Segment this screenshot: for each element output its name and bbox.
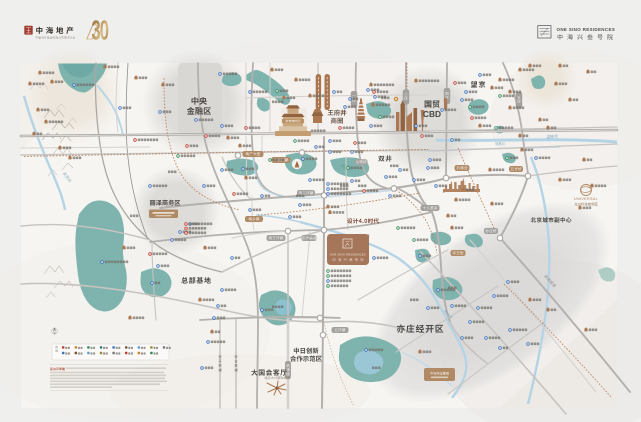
svg-text:M: M xyxy=(365,349,367,352)
svg-text:M: M xyxy=(151,282,153,285)
svg-text:M: M xyxy=(495,127,497,130)
svg-text:M: M xyxy=(242,168,244,171)
svg-text:M: M xyxy=(354,142,356,145)
svg-text:M: M xyxy=(429,159,431,162)
svg-text:M: M xyxy=(201,367,203,370)
svg-text:M: M xyxy=(134,139,136,142)
svg-text:M: M xyxy=(419,255,421,258)
svg-text:M: M xyxy=(233,193,235,196)
svg-text:M: M xyxy=(289,216,291,219)
svg-text:M: M xyxy=(363,190,365,193)
svg-text:M: M xyxy=(327,280,329,283)
svg-text:M: M xyxy=(231,257,233,260)
svg-text:M: M xyxy=(149,185,151,188)
svg-text:M: M xyxy=(327,285,329,288)
svg-text:M: M xyxy=(441,109,443,112)
svg-text:M: M xyxy=(471,117,473,120)
svg-text:M: M xyxy=(205,135,207,138)
svg-text:M: M xyxy=(507,281,509,284)
svg-text:M: M xyxy=(101,261,103,264)
svg-text:ONE SINO RESIDENCES: ONE SINO RESIDENCES xyxy=(557,27,616,32)
svg-text:M: M xyxy=(339,127,341,130)
svg-text:M: M xyxy=(245,127,247,130)
svg-text:M: M xyxy=(195,119,197,122)
svg-text:M: M xyxy=(413,179,415,182)
svg-text:M: M xyxy=(385,176,387,179)
svg-text:M: M xyxy=(499,95,501,98)
svg-text:M: M xyxy=(186,145,188,148)
svg-text:M: M xyxy=(294,140,296,143)
svg-text:M: M xyxy=(149,253,151,256)
svg-text:M: M xyxy=(373,257,375,260)
svg-text:M: M xyxy=(207,341,209,344)
svg-text:M: M xyxy=(415,125,417,128)
svg-text:M: M xyxy=(327,193,329,196)
svg-text:M: M xyxy=(157,265,159,268)
svg-text:M: M xyxy=(333,91,335,94)
svg-text:M: M xyxy=(327,183,329,186)
svg-text:M: M xyxy=(465,91,467,94)
svg-text:M: M xyxy=(427,167,429,170)
svg-text:CBD: CBD xyxy=(423,109,441,119)
svg-text:M: M xyxy=(413,239,415,242)
svg-text:M: M xyxy=(302,158,304,161)
svg-text:M: M xyxy=(329,151,331,154)
svg-text:M: M xyxy=(344,106,346,109)
svg-text:M: M xyxy=(374,96,376,99)
svg-text:M: M xyxy=(451,139,453,142)
svg-text:M: M xyxy=(351,151,353,154)
svg-text:M: M xyxy=(177,155,179,158)
svg-text:M: M xyxy=(435,185,437,188)
svg-text:M: M xyxy=(427,307,429,310)
svg-text:M: M xyxy=(485,337,487,340)
svg-text:M: M xyxy=(315,146,317,149)
svg-text:M: M xyxy=(185,227,187,230)
svg-text:M: M xyxy=(203,185,205,188)
svg-text:M: M xyxy=(179,231,181,234)
svg-text:M: M xyxy=(506,157,508,160)
svg-text:M: M xyxy=(379,116,381,119)
svg-text:M: M xyxy=(347,167,349,170)
svg-text:M: M xyxy=(421,135,423,138)
svg-text:M: M xyxy=(535,157,537,160)
svg-text:30: 30 xyxy=(91,14,108,46)
svg-text:M: M xyxy=(327,270,329,273)
svg-text:ONE SINO RESIDENCES: ONE SINO RESIDENCES xyxy=(330,253,366,257)
svg-text:M: M xyxy=(159,111,161,114)
svg-text:M: M xyxy=(499,347,501,350)
svg-text:M: M xyxy=(351,180,353,183)
svg-text:M: M xyxy=(249,91,251,94)
svg-text:M: M xyxy=(261,309,263,312)
svg-text:M: M xyxy=(389,195,391,198)
svg-text:M: M xyxy=(185,223,187,226)
svg-text:M: M xyxy=(479,74,481,77)
svg-text:M: M xyxy=(399,169,401,172)
svg-text:M: M xyxy=(171,239,173,242)
svg-text:M: M xyxy=(477,307,479,310)
svg-text:M: M xyxy=(327,188,329,191)
svg-text:M: M xyxy=(437,289,439,292)
svg-text:M: M xyxy=(185,232,187,235)
svg-text:M: M xyxy=(221,289,223,292)
svg-text:M: M xyxy=(327,275,329,278)
svg-text:M: M xyxy=(370,125,372,128)
svg-text:UNIVERSAL: UNIVERSAL xyxy=(574,197,598,201)
svg-text:M: M xyxy=(493,295,495,298)
svg-text:M: M xyxy=(527,343,529,346)
svg-text:M: M xyxy=(213,317,215,320)
svg-text:M: M xyxy=(249,209,251,212)
svg-text:M: M xyxy=(451,305,453,308)
svg-text:M: M xyxy=(221,125,223,128)
svg-text:M: M xyxy=(119,107,121,110)
svg-text:M: M xyxy=(469,321,471,324)
svg-text:M: M xyxy=(395,97,397,101)
svg-text:M: M xyxy=(221,169,223,172)
svg-text:M: M xyxy=(73,84,75,87)
svg-text:M: M xyxy=(454,82,456,85)
svg-text:M: M xyxy=(329,140,331,143)
svg-text:M: M xyxy=(373,91,375,94)
svg-text:M: M xyxy=(461,337,463,340)
svg-text:M: M xyxy=(269,159,271,162)
svg-text:M: M xyxy=(217,305,219,308)
svg-text:M: M xyxy=(261,195,263,198)
svg-text:M: M xyxy=(509,329,511,332)
svg-text:M: M xyxy=(397,227,399,230)
svg-text:M: M xyxy=(219,73,221,76)
svg-text:M: M xyxy=(299,204,301,207)
svg-text:M: M xyxy=(309,179,311,182)
svg-text:M: M xyxy=(349,98,351,101)
svg-text:M: M xyxy=(461,99,463,102)
svg-text:M: M xyxy=(367,89,369,92)
svg-text:M: M xyxy=(469,106,471,109)
svg-text:M: M xyxy=(276,90,278,93)
